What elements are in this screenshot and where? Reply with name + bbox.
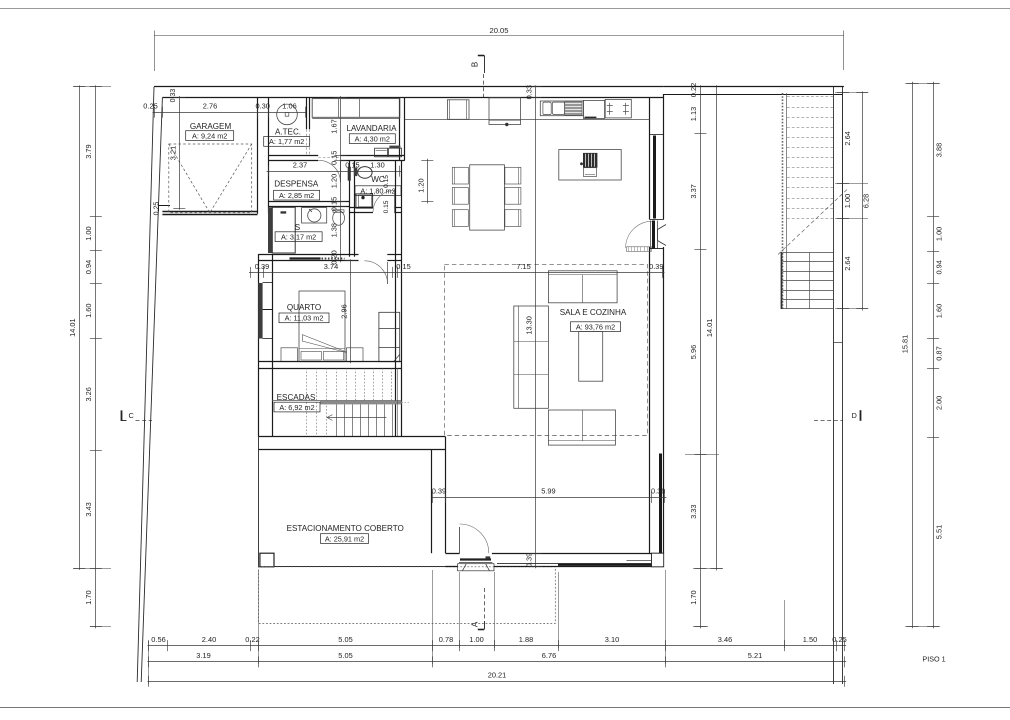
svg-text:0.15: 0.15 xyxy=(383,200,390,213)
svg-text:B: B xyxy=(471,62,480,67)
svg-text:1.20: 1.20 xyxy=(417,178,426,192)
svg-text:15.81: 15.81 xyxy=(900,335,909,354)
svg-text:1.00: 1.00 xyxy=(469,635,483,644)
svg-text:0.15: 0.15 xyxy=(329,151,338,165)
svg-text:20.21: 20.21 xyxy=(488,671,507,680)
svg-text:2.00: 2.00 xyxy=(935,396,944,410)
svg-text:0.33: 0.33 xyxy=(524,85,533,99)
svg-text:SALA E COZINHA: SALA E COZINHA xyxy=(560,308,627,317)
svg-text:A: 9,24 m2: A: 9,24 m2 xyxy=(192,131,227,140)
svg-text:5.05: 5.05 xyxy=(338,651,352,660)
svg-text:14.01: 14.01 xyxy=(68,318,77,337)
svg-text:1.50: 1.50 xyxy=(803,635,817,644)
svg-text:0.25: 0.25 xyxy=(154,202,161,216)
svg-text:1.00: 1.00 xyxy=(935,227,944,241)
svg-text:DESPENSA: DESPENSA xyxy=(274,180,319,189)
svg-text:1.30: 1.30 xyxy=(370,160,384,169)
svg-text:0.39: 0.39 xyxy=(649,262,663,271)
svg-text:0.78: 0.78 xyxy=(439,635,453,644)
svg-text:5.51: 5.51 xyxy=(935,525,944,539)
svg-text:5.21: 5.21 xyxy=(748,651,762,660)
svg-text:20.05: 20.05 xyxy=(489,26,508,35)
svg-text:A.TEC.: A.TEC. xyxy=(275,127,301,136)
svg-text:6.76: 6.76 xyxy=(542,651,556,660)
svg-text:3.43: 3.43 xyxy=(84,502,93,516)
svg-text:14.01: 14.01 xyxy=(705,319,714,338)
svg-text:0.94: 0.94 xyxy=(84,260,93,274)
svg-text:0.22: 0.22 xyxy=(245,635,259,644)
svg-text:1.00: 1.00 xyxy=(843,194,852,208)
svg-text:1.13: 1.13 xyxy=(689,107,698,121)
svg-text:0.33: 0.33 xyxy=(170,89,177,103)
svg-text:3.10: 3.10 xyxy=(605,635,619,644)
svg-text:2.76: 2.76 xyxy=(203,101,217,110)
svg-text:A: 93,76 m2: A: 93,76 m2 xyxy=(576,322,615,331)
svg-text:0.94: 0.94 xyxy=(935,260,944,274)
svg-text:7.15: 7.15 xyxy=(516,262,530,271)
svg-text:0.30: 0.30 xyxy=(256,101,270,110)
svg-text:1.70: 1.70 xyxy=(84,590,93,604)
svg-text:1.60: 1.60 xyxy=(84,304,93,318)
svg-text:13.30: 13.30 xyxy=(524,316,533,335)
svg-text:A: 4,30 m2: A: 4,30 m2 xyxy=(355,134,390,143)
svg-text:0.15: 0.15 xyxy=(329,197,338,211)
svg-text:0.22: 0.22 xyxy=(689,83,698,97)
svg-text:3.88: 3.88 xyxy=(935,143,944,157)
svg-text:0.15: 0.15 xyxy=(396,262,410,271)
svg-text:5.96: 5.96 xyxy=(689,345,698,359)
svg-text:2.64: 2.64 xyxy=(843,131,852,145)
svg-text:S: S xyxy=(295,223,301,232)
svg-text:A: 25,91 m2: A: 25,91 m2 xyxy=(325,534,364,543)
svg-text:2.64: 2.64 xyxy=(843,256,852,270)
svg-text:1.70: 1.70 xyxy=(689,590,698,604)
svg-text:A: 6,92 m2: A: 6,92 m2 xyxy=(279,403,314,412)
svg-text:A: 1,77 m2: A: 1,77 m2 xyxy=(269,137,304,146)
svg-text:6.28: 6.28 xyxy=(862,194,871,208)
svg-text:3.26: 3.26 xyxy=(84,387,93,401)
svg-text:2.96: 2.96 xyxy=(340,304,349,318)
svg-text:A: 11,03 m2: A: 11,03 m2 xyxy=(285,314,324,323)
svg-text:0.39: 0.39 xyxy=(255,262,269,271)
svg-text:GARAGEM: GARAGEM xyxy=(190,122,232,131)
svg-text:QUARTO: QUARTO xyxy=(287,303,321,312)
svg-text:A: A xyxy=(471,621,480,627)
svg-text:PISO 1: PISO 1 xyxy=(922,655,945,664)
svg-text:1.88: 1.88 xyxy=(519,635,533,644)
svg-text:0.56: 0.56 xyxy=(151,635,165,644)
svg-text:3.79: 3.79 xyxy=(84,144,93,158)
svg-text:1.60: 1.60 xyxy=(935,304,944,318)
svg-text:0.39: 0.39 xyxy=(432,487,446,496)
svg-text:3.21: 3.21 xyxy=(169,146,178,160)
svg-text:0.15: 0.15 xyxy=(345,160,359,169)
svg-text:0.87: 0.87 xyxy=(935,346,944,360)
svg-text:0.25: 0.25 xyxy=(832,635,846,644)
svg-text:LAVANDARIA: LAVANDARIA xyxy=(346,124,397,133)
svg-text:WC: WC xyxy=(371,175,385,184)
svg-text:3.74: 3.74 xyxy=(324,262,338,271)
svg-text:D: D xyxy=(852,411,857,420)
svg-text:2.37: 2.37 xyxy=(293,160,307,169)
svg-text:ESCADAS: ESCADAS xyxy=(277,393,316,402)
svg-text:0.39: 0.39 xyxy=(651,487,665,496)
svg-text:2.40: 2.40 xyxy=(202,635,216,644)
svg-text:3.37: 3.37 xyxy=(689,184,698,198)
svg-text:1.20: 1.20 xyxy=(329,174,338,188)
svg-text:1.06: 1.06 xyxy=(282,101,296,110)
svg-text:0.39: 0.39 xyxy=(524,553,533,567)
svg-text:3.33: 3.33 xyxy=(689,505,698,519)
svg-text:1.67: 1.67 xyxy=(329,119,338,133)
svg-text:5.99: 5.99 xyxy=(541,487,555,496)
svg-text:3.46: 3.46 xyxy=(718,635,732,644)
svg-text:0.25: 0.25 xyxy=(143,101,157,110)
svg-text:ESTACIONAMENTO COBERTO: ESTACIONAMENTO COBERTO xyxy=(287,524,404,533)
svg-text:A: 2,85 m2: A: 2,85 m2 xyxy=(279,191,314,200)
svg-text:C: C xyxy=(129,411,135,420)
svg-text:A: 3,17 m2: A: 3,17 m2 xyxy=(281,232,316,241)
svg-text:5.05: 5.05 xyxy=(338,635,352,644)
svg-text:1.00: 1.00 xyxy=(84,226,93,240)
svg-text:3.19: 3.19 xyxy=(196,651,210,660)
